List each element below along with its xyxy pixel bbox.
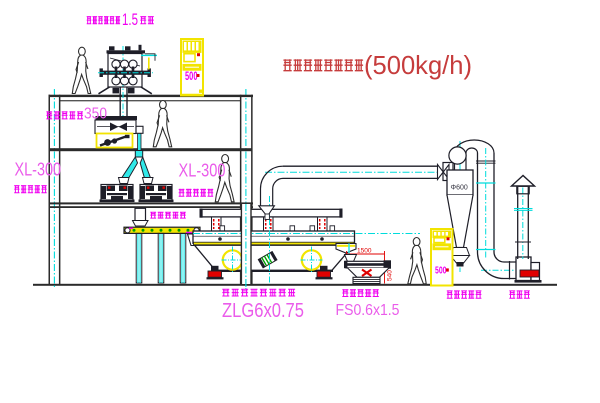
- svg-text:XL-300: XL-300: [15, 160, 62, 180]
- svg-text:500: 500: [185, 71, 198, 83]
- svg-text:500: 500: [435, 265, 447, 277]
- svg-text:ZLG6x0.75: ZLG6x0.75: [222, 300, 304, 322]
- svg-text:FS0.6x1.5: FS0.6x1.5: [336, 302, 400, 319]
- svg-text:350: 350: [84, 106, 107, 123]
- svg-text:1.5: 1.5: [122, 11, 138, 29]
- svg-text:(500kg/h): (500kg/h): [364, 50, 472, 80]
- svg-text:540: 540: [387, 270, 394, 281]
- svg-text:1500: 1500: [357, 248, 372, 255]
- svg-text:Φ600: Φ600: [451, 185, 468, 192]
- svg-text:XL-300: XL-300: [179, 161, 226, 181]
